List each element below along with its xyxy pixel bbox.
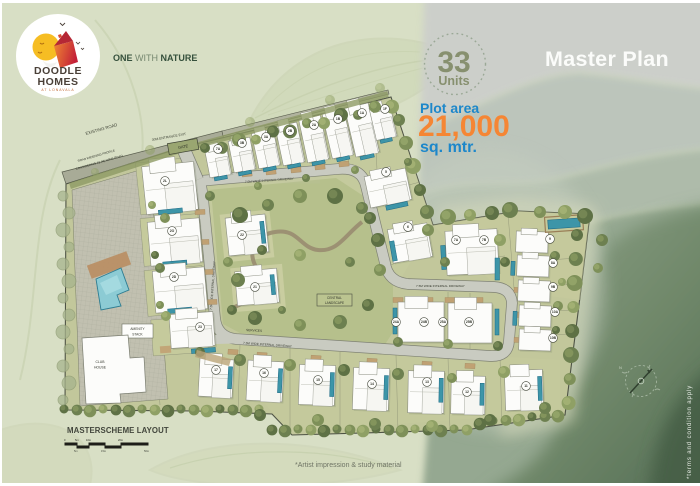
- svg-text:15m: 15m: [101, 449, 106, 453]
- svg-text:1F: 1F: [383, 107, 387, 111]
- svg-text:10A: 10A: [552, 310, 559, 314]
- svg-text:22: 22: [240, 233, 244, 237]
- svg-text:24B: 24B: [421, 320, 428, 324]
- svg-text:MASTERSCHEME LAYOUT: MASTERSCHEME LAYOUT: [67, 426, 169, 435]
- svg-text:16: 16: [262, 371, 266, 375]
- svg-text:2B: 2B: [288, 129, 293, 133]
- svg-text:AMENITY: AMENITY: [130, 327, 145, 331]
- svg-text:5: 5: [385, 170, 387, 174]
- svg-text:2O: 2O: [170, 229, 175, 233]
- svg-text:2L: 2L: [163, 179, 167, 183]
- svg-text:1A: 1A: [360, 111, 365, 115]
- svg-text:7A: 7A: [216, 147, 221, 151]
- svg-text:8A: 8A: [551, 261, 556, 265]
- svg-text:sq. mtr.: sq. mtr.: [420, 139, 477, 156]
- svg-text:ONE WITH NATURE: ONE WITH NATURE: [113, 53, 197, 63]
- svg-text:23: 23: [198, 325, 202, 329]
- svg-text:STACK: STACK: [132, 333, 143, 337]
- svg-text:15: 15: [316, 378, 320, 382]
- svg-text:2A: 2A: [312, 123, 317, 127]
- svg-text:5m: 5m: [74, 449, 78, 453]
- svg-text:9: 9: [549, 237, 551, 241]
- svg-text:Master Plan: Master Plan: [545, 47, 669, 71]
- svg-text:6: 6: [407, 225, 409, 229]
- svg-text:25B: 25B: [466, 320, 473, 324]
- svg-text:AT LONAVALA: AT LONAVALA: [41, 88, 74, 92]
- svg-text:9B: 9B: [551, 285, 556, 289]
- svg-text:25A: 25A: [440, 320, 447, 324]
- svg-text:13: 13: [425, 380, 429, 384]
- svg-text:1B: 1B: [336, 117, 341, 121]
- svg-text:HOUSE: HOUSE: [94, 366, 107, 370]
- svg-text:LANDSCAPE: LANDSCAPE: [325, 301, 344, 305]
- svg-text:7.5M WIDE INTERNAL DRIVEWAY: 7.5M WIDE INTERNAL DRIVEWAY: [416, 284, 465, 288]
- svg-text:3B: 3B: [240, 141, 245, 145]
- svg-text:2D: 2D: [172, 275, 177, 279]
- svg-text:5m: 5m: [75, 438, 79, 442]
- svg-text:N: N: [619, 365, 622, 370]
- svg-text:21: 21: [253, 285, 257, 289]
- svg-text:14: 14: [370, 382, 374, 386]
- svg-text:*Artist impression & study mat: *Artist impression & study material: [295, 462, 402, 469]
- svg-text:7A: 7A: [454, 238, 459, 242]
- svg-text:24A: 24A: [393, 320, 400, 324]
- svg-text:CENTRAL: CENTRAL: [327, 296, 342, 300]
- svg-text:3A: 3A: [264, 135, 269, 139]
- svg-text:10m: 10m: [86, 438, 91, 442]
- svg-text:20m: 20m: [118, 438, 123, 442]
- svg-text:HOMES: HOMES: [37, 76, 78, 88]
- svg-text:*terms and condition apply: *terms and condition apply: [687, 385, 693, 479]
- svg-text:SERVICES: SERVICES: [246, 328, 262, 333]
- svg-text:50m: 50m: [144, 449, 149, 453]
- svg-text:Units: Units: [438, 74, 469, 88]
- svg-text:12: 12: [465, 390, 469, 394]
- svg-text:11: 11: [524, 384, 528, 388]
- svg-text:10B: 10B: [550, 336, 557, 340]
- svg-text:CLUB: CLUB: [95, 360, 105, 364]
- svg-text:7B: 7B: [482, 238, 487, 242]
- svg-text:17: 17: [214, 368, 218, 372]
